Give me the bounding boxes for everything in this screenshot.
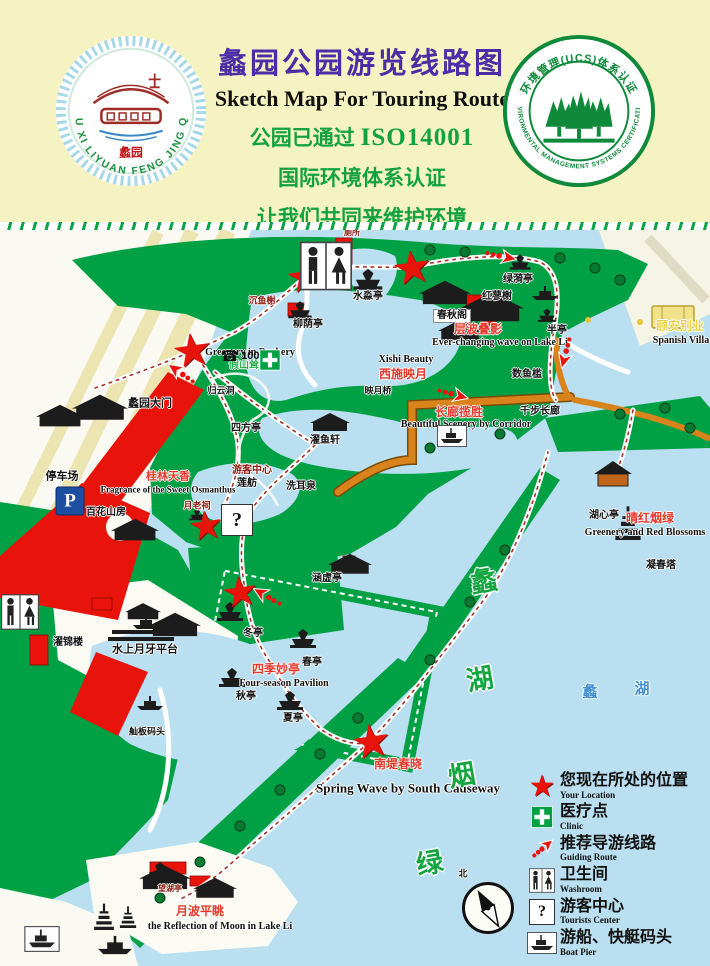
legend-sublabel: Guiding Route <box>560 852 656 863</box>
compass-icon <box>462 882 514 934</box>
legend-item-boat-pier: 游船、快艇码头 Boat Pier <box>524 929 706 957</box>
map-label: 沉鱼榭 <box>248 297 275 306</box>
badge-seal-text: 蠡园 <box>119 145 143 159</box>
park-logo-badge: WU XI LIYUAN FENG JING QU 蠡园 <box>52 32 210 190</box>
map-label: 夏亭 <box>283 714 303 724</box>
legend-sublabel: Washroom <box>560 884 608 895</box>
legend-label: 游客中心 <box>560 898 624 916</box>
park-touring-map: 蠡园大门停车场游客中心百花山房桂林天香Fragrance of the Swee… <box>0 0 710 966</box>
map-label: 千步长廊 <box>520 407 560 417</box>
legend-item-location: ★ 您现在所处的位置 Your Location <box>524 772 706 800</box>
your-location-star: ★ <box>388 241 435 292</box>
map-label: the Reflection of Moon in Lake Li <box>148 922 292 932</box>
map-label: Greenery and Red Blossoms <box>585 528 706 538</box>
legend-label: 卫生间 <box>560 866 608 884</box>
map-label: 映月桥 <box>364 387 391 396</box>
header-titles: 蠡园公园游览线路图 Sketch Map For Touring Route 公… <box>212 40 512 232</box>
legend-sublabel: Boat Pier <box>560 947 672 958</box>
map-label: 濯锦楼 <box>53 638 83 648</box>
clinic-cross-icon <box>260 350 281 371</box>
ucs-cert-badge: 环境管理(UCS)体系认证 ENVIRONMENTAL MANAGEMENT S… <box>500 32 658 190</box>
map-label: 湖 <box>464 664 495 695</box>
map-label: 望湖亭 <box>158 885 182 893</box>
map-label: 水上月牙平台 <box>112 645 178 656</box>
legend-sublabel: Clinic <box>560 821 608 832</box>
map-label: 颐安别业 <box>656 320 704 332</box>
map-label: 红蓼榭 <box>482 292 512 302</box>
restroom-icon <box>1 594 39 630</box>
map-label: 涵虚亭 <box>312 574 342 584</box>
your-location-star: ★ <box>347 715 394 766</box>
map-label: 蠡 <box>582 685 597 700</box>
map-label: 桂林天香 <box>146 472 190 483</box>
map-label: 春秋阁 <box>433 309 471 323</box>
map-label: 冬亭 <box>243 629 263 639</box>
route-arrow-icon <box>433 380 471 408</box>
legend-label: 您现在所处的位置 <box>560 772 688 790</box>
map-label: 北 <box>458 870 467 879</box>
legend-sublabel: Your Location <box>560 790 688 801</box>
map-label: 西施映月 <box>379 368 427 380</box>
map-label: 舢板码头 <box>129 728 165 737</box>
map-label: 柳荫亭 <box>293 320 323 330</box>
page-subtitle: Sketch Map For Touring Route <box>212 86 512 112</box>
map-label: Spanish Villa <box>653 336 709 346</box>
map-label: 春亭 <box>302 658 322 668</box>
legend-label: 医疗点 <box>560 803 608 821</box>
guiding-route-arrow-icon <box>524 835 560 863</box>
map-label: 数鱼槛 <box>512 370 542 380</box>
map-label: 濯鱼轩 <box>310 436 340 446</box>
washroom-icon <box>524 866 560 894</box>
map-label: Fragrance of the Sweet Osmanthus <box>101 486 236 495</box>
legend-sublabel: Tourists Center <box>560 915 624 926</box>
cert-line-1: 公园已通过 ISO14001 <box>212 122 512 152</box>
map-label: 湖心亭 <box>589 511 619 521</box>
map-label: 凝春塔 <box>646 561 676 571</box>
route-arrow-icon <box>481 243 518 270</box>
map-label: 层波叠影 <box>454 323 502 335</box>
map-label: 归云洞 <box>207 387 234 396</box>
cert-line-2: 国际环境体系认证 <box>212 162 512 192</box>
question-icon: ? <box>524 898 560 926</box>
map-label: 湖 <box>634 682 649 697</box>
your-location-star-icon: ★ <box>524 772 560 800</box>
clinic-cross-icon <box>524 803 560 831</box>
parking-icon: P <box>56 487 85 516</box>
map-label: 烟 <box>446 760 477 791</box>
map-label: 洗耳泉 <box>286 482 316 492</box>
phone-icon: ☎100 <box>220 347 259 365</box>
boat-icon <box>524 929 560 957</box>
legend-item-route: 推荐导游线路 Guiding Route <box>524 835 706 863</box>
map-label: 百花山房 <box>86 508 126 518</box>
map-legend: ★ 您现在所处的位置 Your Location 医疗点 Clinic 推荐导游… <box>524 772 706 960</box>
map-label: 秋亭 <box>236 692 256 702</box>
map-label: 绿 <box>414 848 445 879</box>
map-label: 停车场 <box>46 472 79 483</box>
map-label: 水淼亭 <box>353 292 383 302</box>
map-label: 蠡 <box>468 566 499 597</box>
tourists-center-icon: ? <box>221 504 253 536</box>
map-label: 月波平眺 <box>176 905 224 917</box>
legend-item-tourists-center: ? 游客中心 Tourists Center <box>524 898 706 926</box>
boat-pier-icon <box>437 425 467 447</box>
page-title: 蠡园公园游览线路图 <box>212 40 512 82</box>
map-label: 四方亭 <box>231 424 261 434</box>
map-label: 蠡园大门 <box>128 399 172 410</box>
map-label: Xishi Beauty <box>379 355 434 365</box>
legend-label: 游船、快艇码头 <box>560 929 672 947</box>
map-label: 绿漪亭 <box>503 275 533 285</box>
map-label: Ever-changing wave on Lake Li <box>432 338 568 348</box>
map-label: 晴红烟绿 <box>626 512 674 524</box>
boat-pier-icon <box>24 926 60 952</box>
header-divider <box>0 222 710 230</box>
iso-code: ISO14001 <box>361 124 475 151</box>
map-label: 莲舫 <box>237 479 257 489</box>
legend-item-washroom: 卫生间 Washroom <box>524 866 706 894</box>
legend-label: 推荐导游线路 <box>560 835 656 853</box>
map-label: 四季妙亭 <box>252 663 300 675</box>
map-label: Four-season Pavilion <box>239 679 328 689</box>
map-label: 长廊揽胜 <box>435 406 483 418</box>
map-label: 游客中心 <box>232 466 272 476</box>
header: WU XI LIYUAN FENG JING QU 蠡园 蠡园公园游览线路图 S… <box>0 0 710 222</box>
restroom-icon <box>300 242 352 291</box>
legend-item-clinic: 医疗点 Clinic <box>524 803 706 831</box>
